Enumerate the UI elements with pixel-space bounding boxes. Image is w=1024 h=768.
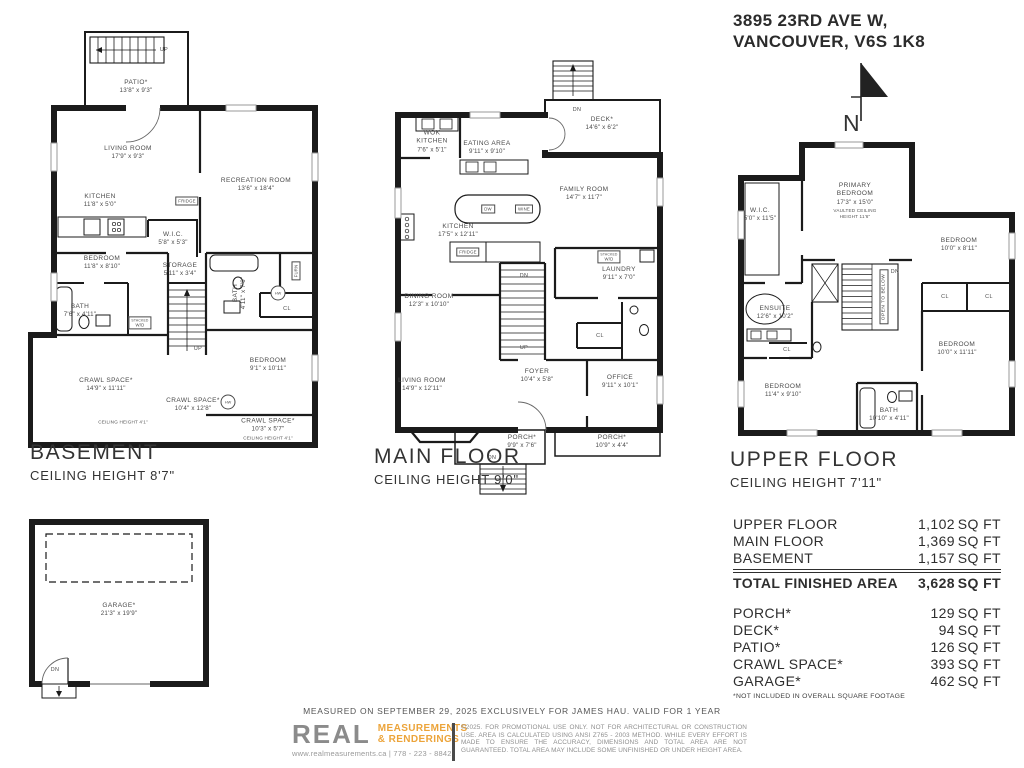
room-label-bath-2: BATH 4'11" x 7'6" [232, 277, 249, 309]
stairs-up-label: UP [520, 345, 528, 351]
room-label-storage: STORAGE 5'11" x 3'4" [163, 262, 197, 279]
room-label-wok-kitchen: WOK KITCHEN 7'6" x 5'1" [414, 130, 450, 155]
main-floor-title: MAIN FLOOR CEILING HEIGHT 9'0" [374, 445, 521, 487]
hot-water-tank-2: HW [221, 395, 236, 410]
room-label-bedroom-2: BEDROOM 9'1" x 10'11" [250, 357, 286, 374]
room-label-patio: PATIO* 13'8" x 9'3" [120, 79, 153, 96]
area-row-total: TOTAL FINISHED AREA 3,628 SQ FT [733, 575, 1001, 592]
upper-floor-plan: W.I.C. 5'0" x 11'5" PRIMARY BEDROOM 17'3… [727, 133, 1017, 453]
area-row-basement: BASEMENT 1,157 SQ FT [733, 550, 1001, 567]
room-label-dining-room: DINING ROOM 12'3" x 10'10" [404, 293, 453, 310]
area-summary: UPPER FLOOR 1,102 SQ FT MAIN FLOOR 1,369… [733, 516, 1001, 700]
stairs-down-porch-label: DN [488, 455, 497, 461]
floorplan-page: 3895 23RD AVE W, VANCOUVER, V6S 1K8 N [0, 0, 1024, 768]
room-label-eating-area: EATING AREA 9'11" x 9'10" [463, 140, 510, 157]
room-label-kitchen: KITCHEN 17'5" x 12'11" [438, 223, 478, 240]
table-gap [733, 592, 1001, 605]
dishwasher-box: DW [481, 205, 495, 214]
stairs-down-label: DN [520, 273, 529, 279]
total-divider [733, 569, 1001, 573]
room-label-wic: W.I.C. 5'8" x 5'3" [158, 231, 187, 248]
stacked-washer-dryer-box: STACKED W/D [128, 316, 151, 329]
legal-disclaimer: ©2025. FOR PROMOTIONAL USE ONLY. NOT FOR… [461, 724, 747, 755]
company-logo: REAL MEASUREMENTS & RENDERINGS www.realm… [292, 721, 468, 758]
closet-label: CL [283, 306, 291, 312]
room-label-crawl-space-1: CRAWL SPACE* 14'9" x 11'11" [79, 377, 133, 394]
basement-walls [28, 25, 368, 460]
address-line1: 3895 23RD AVE W, [733, 10, 925, 31]
stairs-up-label-2: UP [194, 346, 202, 352]
stacked-washer-dryer-box: STACKED W/D [597, 250, 620, 263]
upper-floor-title: UPPER FLOOR CEILING HEIGHT 7'11" [730, 448, 898, 490]
area-row-deck: DECK* 94 SQ FT [733, 622, 1001, 639]
room-label-recreation-room: RECREATION ROOM 13'6" x 18'4" [221, 177, 291, 194]
room-label-living-room: LIVING ROOM 14'9" x 12'11" [398, 377, 446, 394]
area-row-porch: PORCH* 129 SQ FT [733, 605, 1001, 622]
basement-title: BASEMENT CEILING HEIGHT 8'7" [30, 441, 175, 483]
room-label-foyer: FOYER 10'4" x 5'8" [521, 368, 554, 385]
footer-divider [452, 723, 455, 761]
closet-label-1: CL [941, 294, 949, 300]
fridge-box: FRIDGE [175, 197, 198, 206]
area-row-crawl-space: CRAWL SPACE* 393 SQ FT [733, 656, 1001, 673]
measured-statement: MEASURED ON SEPTEMBER 29, 2025 EXCLUSIVE… [0, 706, 1024, 716]
room-label-porch-2: PORCH* 10'9" x 4'4" [596, 434, 629, 451]
main-floor-plan: WOK KITCHEN 7'6" x 5'1" EATING AREA 9'11… [372, 58, 672, 503]
room-label-kitchen: KITCHEN 11'8" x 5'0" [84, 193, 116, 210]
area-row-upper-floor: UPPER FLOOR 1,102 SQ FT [733, 516, 1001, 533]
room-label-bedroom-3: BEDROOM 11'4" x 9'10" [765, 383, 801, 400]
basement-plan: PATIO* 13'8" x 9'3" UP LIVING ROOM 17'9"… [28, 25, 368, 460]
room-label-primary-bedroom: PRIMARY BEDROOM 17'3" x 15'0" VAULTED CE… [826, 182, 884, 220]
room-label-bedroom-2: BEDROOM 10'0" x 11'11" [937, 341, 976, 358]
room-label-bath: BATH 10'10" x 4'11" [869, 407, 909, 424]
wine-fridge-box: WINE [515, 205, 533, 214]
room-label-living-room: LIVING ROOM 17'9" x 9'3" [104, 145, 152, 162]
area-footnote: *NOT INCLUDED IN OVERALL SQUARE FOOTAGE [733, 693, 1001, 700]
area-row-garage: GARAGE* 462 SQ FT [733, 673, 1001, 690]
room-label-ensuite: ENSUITE 12'6" x 10'2" [757, 305, 794, 322]
room-label-crawl-space-3: CRAWL SPACE* 10'3" x 5'7" CEILING HEIGHT… [241, 417, 295, 440]
company-contact: www.realmeasurements.ca | 778 - 223 - 88… [292, 749, 468, 758]
room-label-wic: W.I.C. 5'0" x 11'5" [744, 207, 776, 224]
stairs-up-label: UP [160, 47, 168, 53]
room-label-crawl-space-2: CRAWL SPACE* 10'4" x 12'8" [166, 397, 220, 414]
closet-label-3: CL [783, 347, 791, 353]
garage-plan: GARAGE* 21'3" x 19'9" DN [28, 518, 210, 708]
open-to-below-label: OPEN TO BELOW [880, 270, 889, 325]
brand-wordmark: REAL [292, 721, 371, 747]
room-label-bath: BATH 7'6" x 4'11" [64, 303, 96, 320]
room-label-bedroom: BEDROOM 11'8" x 8'10" [84, 255, 120, 272]
fridge-box: FRIDGE [456, 248, 479, 257]
stairs-down-label: DN [51, 667, 60, 673]
north-arrow-icon: N [833, 55, 903, 140]
closet-label-2: CL [985, 294, 993, 300]
room-label-deck: DECK* 14'6" x 6'2" [586, 116, 619, 133]
furnace-box: FURN [292, 262, 301, 281]
upper-floor-walls [727, 133, 1017, 453]
crawl-space-ceiling-note: CEILING HEIGHT 4'1" [98, 420, 148, 425]
room-label-bedroom: BEDROOM 10'0" x 8'11" [941, 237, 977, 254]
closet-label: CL [596, 333, 604, 339]
area-row-main-floor: MAIN FLOOR 1,369 SQ FT [733, 533, 1001, 550]
stairs-down-deck-label: DN [573, 107, 582, 113]
room-label-porch: PORCH* 9'9" x 7'6" [507, 434, 536, 451]
hot-water-tank: HW [271, 286, 286, 301]
address-line2: VANCOUVER, V6S 1K8 [733, 31, 925, 52]
room-label-family-room: FAMILY ROOM 14'7" x 11'7" [560, 186, 609, 203]
room-label-laundry: LAUNDRY 9'11" x 7'0" [602, 266, 636, 283]
stairs-down-label: DN [891, 269, 900, 275]
property-address: 3895 23RD AVE W, VANCOUVER, V6S 1K8 [733, 10, 925, 52]
room-label-office: OFFICE 9'11" x 10'1" [602, 374, 638, 391]
room-label-garage: GARAGE* 21'3" x 19'9" [101, 602, 138, 619]
area-row-patio: PATIO* 126 SQ FT [733, 639, 1001, 656]
